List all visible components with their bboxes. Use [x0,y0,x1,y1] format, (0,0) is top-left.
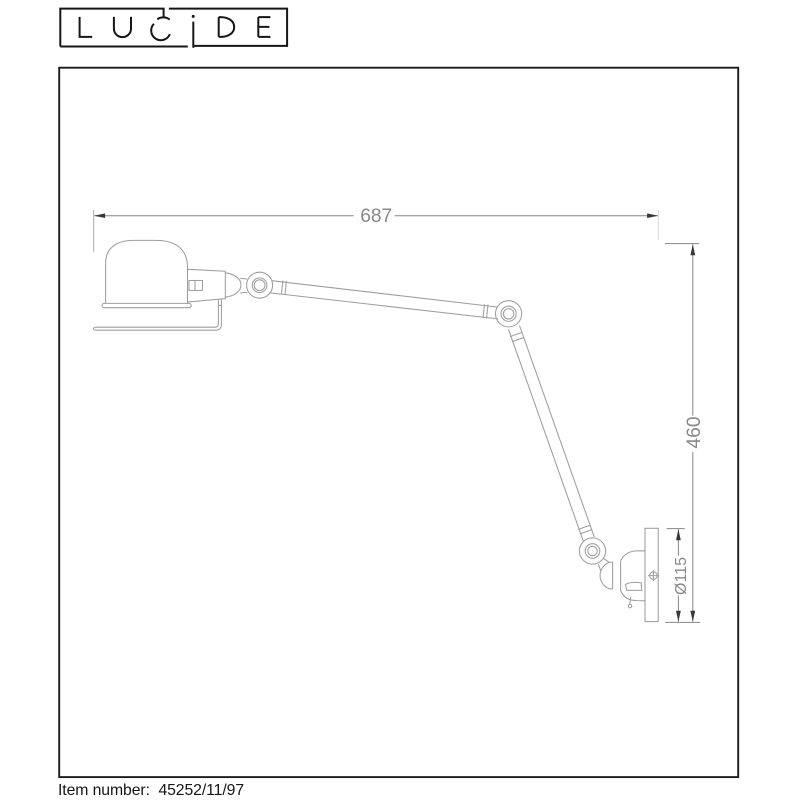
svg-text:460: 460 [684,416,705,448]
svg-text:Item number: 45252/11/97: Item number: 45252/11/97 [58,782,244,799]
svg-text:Ø115: Ø115 [673,557,690,595]
svg-text:687: 687 [360,206,392,227]
